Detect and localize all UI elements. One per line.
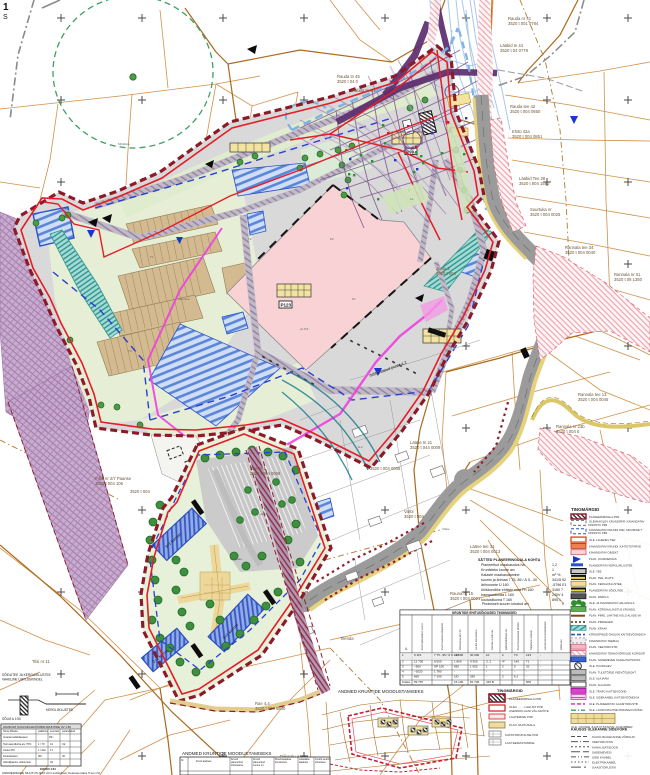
svg-text:suurim ja ärimaa 7 75, 85 / Ä: suurim ja ärimaa 7 75, 85 / Ä 5...30 — [481, 578, 537, 582]
svg-text:ärihoonete Ü 160: ärihoonete Ü 160 — [481, 583, 509, 587]
svg-text:240V 4: 240V 4 — [552, 593, 563, 597]
svg-text:PLAN. EHITUSALA: PLAN. EHITUSALA — [509, 723, 535, 727]
svg-text:märkused: märkused — [560, 639, 563, 650]
svg-text:10: 10 — [486, 653, 490, 657]
svg-text:~1620: ~1620 — [414, 670, 423, 674]
svg-text:LAHTEMINE PIIR: LAHTEMINE PIIR — [509, 715, 534, 719]
svg-text:3520 t 004 0851: 3520 t 004 0851 — [512, 134, 543, 139]
svg-text:3520 t 004 5840: 3520 t 004 5840 — [255, 706, 286, 711]
svg-text:ELEKTRIKAABEL: ELEKTRIKAABEL — [592, 761, 617, 765]
svg-text:KAVANDATAV KRUNDI JUHTOTSTARVE: KAVANDATAV KRUNDI JUHTOTSTARVE — [589, 544, 641, 548]
svg-text:TINGMÄRGID: TINGMÄRGID — [571, 507, 599, 512]
svg-text:3520 t 04 0: 3520 t 04 0 — [337, 79, 359, 84]
svg-text:SÕIDUTEE JA KERGLIIKLUSTEE: SÕIDUTEE JA KERGLIIKLUSTEE — [2, 672, 51, 677]
svg-text:Rauda tn 44: Rauda tn 44 — [352, 88, 375, 93]
svg-text:3520 t 004 0: 3520 t 004 0 — [556, 429, 580, 434]
svg-text:Asuta 370: Asuta 370 — [3, 748, 15, 752]
svg-text:KERGLIIKLUSTEE: KERGLIIKLUSTEE — [46, 708, 73, 712]
svg-text:ASUKOHT KASVUKOHATÜÜBID KRUNTI: ASUKOHT KASVUKOHATÜÜBID KRUNTIDE ÜV 1:50 — [3, 725, 71, 729]
svg-text:-: - — [454, 670, 455, 674]
svg-text:KANALISATSIOON: KANALISATSIOON — [592, 745, 618, 749]
svg-text:VAHELINE ÜHTLUSKINDEL: VAHELINE ÜHTLUSKINDEL — [2, 678, 43, 682]
svg-text:7 100: 7 100 — [434, 675, 442, 679]
svg-text:m² %: m² % — [552, 573, 561, 577]
svg-text:Kruntideks krunte arv: Kruntideks krunte arv — [481, 568, 515, 572]
svg-text:PLANEERIMISALA PIIR: PLANEERIMISALA PIIR — [509, 697, 542, 701]
svg-text:3520 t 004 0006: 3520 t 004 0006 — [250, 471, 281, 476]
svg-text:krundi aadress-ettepanek: krundi aadress-ettepanek — [441, 622, 444, 650]
svg-text:341/5 92: 341/5 92 — [552, 578, 566, 582]
svg-text:Väike: Väike — [442, 527, 450, 531]
svg-text:ehitusluse: ehitusluse — [315, 761, 326, 764]
svg-text:140: 140 — [514, 660, 519, 664]
svg-text:transpordimaa L 160: transpordimaa L 160 — [481, 593, 514, 597]
svg-text:S: S — [3, 14, 8, 21]
svg-text:260: 260 — [470, 675, 475, 679]
svg-text:Kokku: Kokku — [402, 680, 411, 684]
svg-text:krundi kasutamise sihtotst: krundi kasutamise sihtotst — [517, 622, 520, 650]
svg-text:GAASITORUSTIK: GAASITORUSTIK — [592, 766, 616, 770]
svg-text:pakkima: pakkima — [38, 729, 48, 733]
svg-text:3520 t 004 0850: 3520 t 004 0850 — [510, 109, 541, 114]
svg-text:PLAN. ALAJAAM: PLAN. ALAJAAM — [589, 683, 611, 687]
svg-text:parkimiskohtade arv: parkimiskohtade arv — [505, 628, 508, 650]
svg-text:ümarja kodebilausest: ümarja kodebilausest — [3, 735, 28, 739]
svg-text:ANDMERIDADE MUUTUS (EST AO Lin: ANDMERIDADE MUUTUS (EST AO Lindistvbad, … — [2, 771, 100, 775]
svg-text:1: 1 — [3, 2, 9, 13]
svg-text:3160 7: 3160 7 — [552, 588, 563, 592]
svg-text:1 655: 1 655 — [470, 665, 478, 669]
svg-text:KAVANDATAV OBJEKT: KAVANDATAV OBJEKT — [589, 551, 619, 555]
svg-text:OLE. PUURKAEV: OLE. PUURKAEV — [589, 664, 612, 668]
svg-text:-: - — [470, 670, 471, 674]
svg-text:PLAN. JUURDEPÄÄS: PLAN. JUURDEPÄÄS — [589, 557, 617, 561]
svg-text:KAVANDATAV TEHNOVÕRKUDE KORIDO: KAVANDATAV TEHNOVÕRKUDE KORIDOR — [589, 651, 645, 656]
svg-text:OLE. SIDEKAABEL KAITSEVÖÖNDIGA: OLE. SIDEKAABEL KAITSEVÖÖNDIGA — [589, 696, 639, 700]
svg-text:kinnistutest: kinnistutest — [275, 761, 287, 764]
svg-text:OLE. ALAJAAM: OLE. ALAJAAM — [589, 677, 609, 681]
svg-text:T1: T1 — [150, 255, 154, 259]
svg-text:660: 660 — [414, 675, 419, 679]
svg-text:~560: ~560 — [414, 665, 421, 669]
svg-text:Jätrefiljaanta, tellusmets: Jätrefiljaanta, tellusmets — [3, 760, 32, 764]
svg-text:tootmine: tootmine — [178, 297, 190, 301]
svg-text:Г1: Г1 — [526, 660, 530, 664]
svg-text:3520 t 001 0784: 3520 t 001 0784 — [508, 21, 539, 26]
svg-text:P1: P1 — [352, 297, 356, 301]
svg-text:krundi planeeritud suurus: krundi planeeritud suurus — [421, 622, 424, 650]
svg-text:895 1: 895 1 — [552, 598, 561, 602]
svg-text:-: - — [526, 675, 527, 679]
svg-text:SÄTTED PLANEERINGUALA KOHTA: SÄTTED PLANEERINGUALA KOHTA — [478, 558, 541, 562]
svg-text:98 t: 98 t — [38, 754, 43, 758]
svg-text:3520 t 004 0021: 3520 t 004 0021 — [450, 596, 481, 601]
svg-text:PLAN. KÕRGHALJASTUS KRUNDIL: PLAN. KÕRGHALJASTUS KRUNDIL — [589, 606, 636, 611]
svg-text:3520 t 004 0040: 3520 t 004 0040 — [565, 250, 596, 255]
svg-text:Krunti aadress: Krunti aadress — [196, 760, 212, 763]
svg-text:9: 9 — [562, 602, 564, 606]
svg-text:13 500: 13 500 — [454, 653, 464, 657]
svg-text:3520 t 804 1580: 3520 t 804 1580 — [519, 181, 550, 186]
svg-text:Nime lõheda: Nime lõheda — [3, 729, 18, 733]
svg-text:1 780: 1 780 — [434, 670, 442, 674]
svg-text:3520 t 004: 3520 t 004 — [130, 489, 150, 494]
svg-text:P123: P123 — [281, 303, 292, 308]
svg-text:PLAN. PIIRDEAED: PLAN. PIIRDEAED — [589, 620, 613, 624]
svg-text:KINNISTU PIIR: KINNISTU PIIR — [588, 531, 607, 535]
svg-text:12 700: 12 700 — [414, 660, 424, 664]
svg-text:PLAN. PARKLA: PLAN. PARKLA — [589, 595, 609, 599]
svg-text:-: - — [526, 670, 527, 674]
svg-text:KATASTRIÜKSUSE PIIR: KATASTRIÜKSUSE PIIR — [505, 733, 539, 737]
svg-text:Tilenda: Tilenda — [340, 636, 354, 641]
svg-text:-: - — [502, 670, 503, 674]
svg-text:SADEMEVESI: SADEMEVESI — [592, 750, 612, 754]
svg-text:6/100: 6/100 — [434, 660, 442, 664]
svg-text:KRUNTIDE EHITUSÕIGUSED TINGIM: KRUNTIDE EHITUSÕIGUSED TINGIMUSED — [452, 610, 517, 615]
svg-text:-: - — [540, 653, 541, 657]
svg-text:6,1: 6,1 — [514, 675, 519, 679]
svg-text:PLANEERITAV KERGLIIKLUSTEE: PLANEERITAV KERGLIIKLUSTEE — [589, 563, 633, 567]
svg-text:laaduste: laaduste — [299, 761, 309, 764]
svg-text:Planeeritud maakasutus ha: Planeeritud maakasutus ha — [481, 563, 525, 567]
svg-text:15 100: 15 100 — [454, 680, 464, 684]
svg-text:415 В: 415 В — [486, 680, 494, 684]
svg-text:parandatud: parandatud — [62, 729, 76, 733]
svg-text:32: 32 — [526, 665, 530, 669]
svg-text:T3: T3 — [128, 349, 132, 353]
svg-text:PLAN. KRAAV: PLAN. KRAAV — [589, 626, 607, 630]
svg-text:3520 t 004: 3520 t 004 — [404, 514, 424, 519]
svg-text:ÜP 100: ÜP 100 — [434, 665, 444, 669]
svg-text:1 800: 1 800 — [454, 660, 462, 664]
svg-text:PLAN. PIIRE, LAHTINE KÜLG ALAD: PLAN. PIIRE, LAHTINE KÜLG ALADE VA — [589, 614, 641, 618]
svg-text:OLE. PLANEERITAV GAASITORUSTIK: OLE. PLANEERITAV GAASITORUSTIK — [589, 702, 639, 706]
svg-text:-: - — [540, 675, 541, 679]
svg-text:eh 8,5: eh 8,5 — [300, 327, 309, 331]
svg-text:OLE. LAHENEV TEE: OLE. LAHENEV TEE — [589, 538, 616, 542]
svg-text:1Ю: 1Ю — [454, 675, 459, 679]
svg-text:3520 t 044 0009: 3520 t 044 0009 — [410, 445, 441, 450]
svg-text:Nr: Nr — [181, 759, 184, 762]
svg-text:-: - — [540, 665, 541, 669]
svg-text:T2: T2 — [248, 237, 252, 241]
svg-text:ehitusaluse pind m²: ehitusaluse pind m² — [459, 629, 462, 650]
svg-text:suurim korruselisus: suurim korruselisus — [475, 629, 478, 650]
svg-text:ANDMED KRUNTIDE MOODUSTAMISEKS: ANDMED KRUNTIDE MOODUSTAMISEKS — [338, 689, 424, 694]
svg-text:E-2: E-2 — [358, 445, 363, 449]
svg-text:KAUGUSULEKANNE VÕRGUD: KAUGUSULEKANNE VÕRGUD — [592, 734, 636, 739]
svg-text:3520 t 04 0779: 3520 t 04 0779 — [500, 48, 529, 53]
svg-text:1,2: 1,2 — [552, 563, 557, 567]
svg-text:PLAN. KERGLIIKLUSTEE: PLAN. KERGLIIKLUSTEE — [589, 582, 622, 586]
svg-text:KAVANDATAV TEEMAA: KAVANDATAV TEEMAA — [589, 639, 619, 643]
svg-text:9 115: 9 115 — [414, 653, 422, 657]
svg-text:1 / 70: 1 / 70 — [38, 742, 45, 746]
svg-text:-: - — [514, 670, 515, 674]
svg-text:OLE. TEE: OLE. TEE — [589, 570, 602, 574]
svg-text:99 t: 99 t — [49, 735, 54, 739]
svg-text:3520 t 004 0013: 3520 t 004 0013 — [470, 549, 501, 554]
svg-text:VEETORUSTIK: VEETORUSTIK — [592, 740, 613, 744]
svg-text:OLE. JA KAVANDATAV HALJASALA: OLE. JA KAVANDATAV HALJASALA — [589, 601, 635, 605]
svg-text:3, 2: 3, 2 — [486, 660, 491, 664]
svg-text:Mihkliste: Mihkliste — [118, 142, 130, 146]
svg-text:3520 t 004 0025: 3520 t 004 0025 — [530, 212, 561, 217]
svg-text:Kinterkedest: Kinterkedest — [3, 754, 18, 758]
svg-text:Teki asendkoha arv 70%: Teki asendkoha arv 70% — [3, 742, 32, 746]
svg-text:123: 123 — [526, 653, 531, 657]
svg-text:-: - — [540, 660, 541, 664]
svg-text:sihtotstarve: sihtotstarve — [231, 764, 244, 767]
svg-text:-5796 E1: -5796 E1 — [552, 583, 567, 587]
svg-text:suurtele: suurtele — [50, 729, 60, 733]
svg-text:9 300: 9 300 — [470, 660, 478, 664]
svg-text:hoonete suurim arv: hoonete suurim arv — [491, 629, 494, 650]
svg-text:PLAN. SADEMEVEE KANALISATSIOON: PLAN. SADEMEVEE KANALISATSIOON — [589, 658, 640, 662]
svg-text:1 / Rat: 1 / Rat — [38, 748, 46, 752]
svg-text:81 700: 81 700 — [470, 680, 480, 684]
svg-text:3520 t 004: 3520 t 004 — [436, 271, 456, 276]
svg-text:suurus m²: suurus m² — [253, 764, 264, 767]
svg-text:KÕRGEPINGE ÕHULIIN KAITSEVÖÖND: KÕRGEPINGE ÕHULIIN KAITSEVÖÖNDIGA — [589, 632, 646, 637]
svg-text:KAUGUS ÜLEKANNE SIDEVÕRK: KAUGUS ÜLEKANNE SIDEVÕRK — [571, 727, 628, 732]
svg-text:SÕLM A 1:50: SÕLM A 1:50 — [2, 716, 21, 721]
svg-text:3520 t 004 0008: 3520 t 004 0008 — [370, 466, 401, 471]
svg-text:PLAN. TEE, PLATS: PLAN. TEE, PLATS — [589, 576, 614, 580]
svg-text:-: - — [540, 670, 541, 674]
svg-text:650: 650 — [454, 665, 459, 669]
svg-text:-: - — [486, 675, 487, 679]
svg-text:ANDMED KRUNTIDE MOODUSTAMISEKS: ANDMED KRUNTIDE MOODUSTAMISEKS — [182, 751, 272, 756]
svg-text:PLANEERITAV SÕIDUTEE: PLANEERITAV SÕIDUTEE — [589, 588, 623, 593]
svg-text:Tilsi nr 11: Tilsi nr 11 — [32, 659, 50, 664]
svg-text:Katastri maakasutamine: Katastri maakasutamine — [481, 573, 520, 577]
svg-text:OLE. LOODUSKAITSE PIIRANGUVÖÖN: OLE. LOODUSKAITSE PIIRANGUVÖÖND — [589, 708, 642, 712]
svg-text:PLAN. TULETÕRJE VEEVÕTUKOHT: PLAN. TULETÕRJE VEEVÕTUKOHT — [589, 669, 636, 674]
svg-text:ühiskondlike ehitiste maa Ph 1: ühiskondlike ehitiste maa Ph 160 — [481, 588, 534, 592]
svg-text:KINNISTU PIIR: KINNISTU PIIR — [588, 523, 607, 527]
svg-text:Pindmiselt suurim lubatud arv: Pindmiselt suurim lubatud arv — [482, 602, 529, 606]
svg-text:P2: P2 — [330, 237, 334, 241]
svg-text:ASENDIPLAANI VÄLJAVÕTE: ASENDIPLAANI VÄLJAVÕTE — [509, 708, 549, 713]
svg-text:LAOTEEMASTAMINE: LAOTEEMASTAMINE — [505, 741, 534, 745]
svg-text:605: 605 — [526, 680, 531, 684]
svg-text:veevarustus kanalisatsioon: veevarustus kanalisatsioon — [544, 621, 547, 650]
svg-text:LK: LK — [410, 197, 414, 201]
svg-text:3520 t 08 1350: 3520 t 08 1350 — [614, 277, 643, 282]
svg-text:1: 1 — [552, 568, 554, 572]
svg-text:TINGMÄRGID: TINGMÄRGID — [497, 688, 523, 693]
svg-text:30 000: 30 000 — [470, 653, 480, 657]
svg-text:-: - — [486, 670, 487, 674]
svg-text:59 787: 59 787 — [414, 680, 424, 684]
svg-text:SIDE KAABEL: SIDE KAABEL — [592, 756, 612, 760]
svg-text:3520 t 004 0045: 3520 t 004 0045 — [578, 397, 609, 402]
svg-text:L1: L1 — [226, 433, 230, 437]
svg-text:parkla: parkla — [260, 512, 269, 516]
svg-text:OLE. TRAFO KAITSEVÖÖND: OLE. TRAFO KAITSEVÖÖND — [589, 689, 627, 693]
svg-text:haljastuse osakaal: haljastuse osakaal — [530, 630, 533, 650]
svg-text:haljasala: haljasala — [230, 557, 242, 561]
svg-text:PLANEERIMISALA PIIR: PLANEERIMISALA PIIR — [589, 515, 619, 519]
svg-text:3520 t 004 106: 3520 t 004 106 — [95, 481, 124, 486]
svg-text:PLAN. VEETORUSTIK: PLAN. VEETORUSTIK — [589, 645, 618, 649]
